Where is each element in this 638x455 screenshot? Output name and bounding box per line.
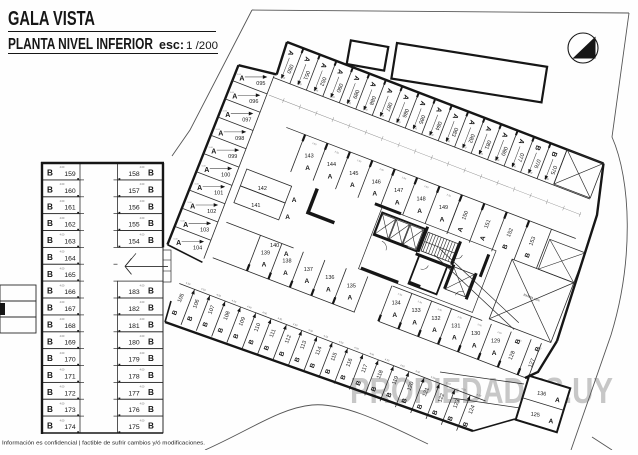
svg-text:4.00: 4.00	[60, 386, 65, 389]
svg-text:159: 159	[64, 171, 76, 178]
svg-text:4.00: 4.00	[60, 251, 65, 254]
svg-text:A: A	[183, 222, 188, 229]
svg-text:B: B	[47, 270, 53, 279]
svg-text:A: A	[350, 182, 355, 189]
svg-text:A: A	[395, 199, 400, 206]
svg-text:156: 156	[128, 205, 140, 212]
svg-text:1 /200: 1 /200	[186, 40, 218, 52]
svg-text:B: B	[47, 321, 53, 330]
svg-text:154: 154	[128, 238, 140, 245]
svg-text:146: 146	[372, 179, 381, 185]
svg-text:4.00: 4.00	[140, 419, 145, 422]
svg-text:B: B	[47, 405, 53, 414]
svg-text:4.00: 4.00	[60, 402, 65, 405]
svg-text:A: A	[211, 149, 216, 156]
svg-text:4.00: 4.00	[140, 183, 145, 186]
svg-text:183: 183	[128, 289, 140, 296]
svg-text:129: 129	[491, 339, 500, 345]
svg-text:179: 179	[128, 357, 140, 364]
svg-text:142: 142	[258, 186, 267, 192]
svg-text:099: 099	[228, 154, 237, 160]
svg-text:167: 167	[64, 306, 76, 313]
svg-text:B: B	[47, 287, 53, 296]
svg-text:143: 143	[304, 154, 313, 160]
svg-text:A: A	[440, 216, 445, 223]
svg-text:B: B	[148, 219, 154, 228]
svg-text:4.00: 4.00	[60, 183, 65, 186]
svg-text:4.00: 4.00	[60, 301, 65, 304]
svg-text:B: B	[47, 304, 53, 313]
svg-text:174: 174	[64, 424, 76, 431]
svg-text:4.00: 4.00	[140, 217, 145, 220]
svg-text:4.00: 4.00	[140, 352, 145, 355]
svg-text:A: A	[284, 251, 289, 258]
svg-text:Información es confidencial |: Información es confidencial | factible d…	[2, 441, 205, 447]
svg-text:A: A	[372, 191, 377, 198]
svg-text:148: 148	[416, 197, 425, 203]
svg-text:4.00: 4.00	[60, 166, 65, 169]
svg-text:4.00: 4.00	[140, 386, 145, 389]
svg-text:4.00: 4.00	[140, 301, 145, 304]
svg-text:173: 173	[64, 407, 76, 414]
svg-text:171: 171	[64, 373, 76, 380]
svg-text:172: 172	[64, 390, 76, 397]
svg-text:A: A	[204, 167, 209, 174]
svg-text:A: A	[190, 204, 195, 211]
svg-text:B: B	[47, 354, 53, 363]
svg-text:A: A	[328, 173, 333, 180]
svg-text:133: 133	[411, 308, 420, 314]
svg-text:A: A	[239, 75, 244, 82]
svg-text:B: B	[47, 253, 53, 262]
svg-text:A: A	[262, 262, 267, 269]
svg-text:GALA VISTA: GALA VISTA	[8, 7, 95, 30]
svg-text:140: 140	[270, 243, 279, 249]
svg-text:102: 102	[207, 209, 216, 215]
svg-text:103: 103	[200, 227, 209, 233]
svg-text:B: B	[47, 186, 53, 195]
svg-text:B: B	[148, 337, 154, 346]
svg-text:180: 180	[128, 340, 140, 347]
svg-text:B: B	[47, 422, 53, 431]
svg-text:A: A	[452, 335, 457, 342]
svg-text:145: 145	[349, 171, 358, 177]
svg-text:A: A	[197, 185, 202, 192]
svg-text:131: 131	[451, 323, 460, 329]
svg-text:4.00: 4.00	[60, 284, 65, 287]
svg-text:4.00: 4.00	[60, 369, 65, 372]
svg-text:136: 136	[537, 391, 547, 398]
svg-text:4.00: 4.00	[140, 318, 145, 321]
svg-text:A: A	[417, 208, 422, 215]
svg-text:166: 166	[64, 289, 76, 296]
svg-text:B: B	[148, 202, 154, 211]
svg-text:A: A	[326, 286, 331, 293]
svg-text:B: B	[148, 422, 154, 431]
svg-text:B: B	[148, 321, 154, 330]
svg-text:PLANTA NIVEL INFERIOR: PLANTA NIVEL INFERIOR	[8, 36, 153, 53]
svg-text:4.00: 4.00	[60, 200, 65, 203]
svg-text:A: A	[285, 214, 290, 221]
svg-text:A: A	[412, 319, 417, 326]
svg-text:A: A	[176, 240, 181, 247]
svg-text:4.00: 4.00	[60, 335, 65, 338]
svg-text:B: B	[148, 186, 154, 195]
svg-text:4.00: 4.00	[60, 352, 65, 355]
svg-text:098: 098	[235, 136, 244, 142]
svg-text:4.00: 4.00	[140, 200, 145, 203]
svg-text:4.00: 4.00	[140, 284, 145, 287]
svg-text:137: 137	[304, 267, 313, 273]
svg-text:158: 158	[128, 171, 140, 178]
svg-text:4.00: 4.00	[140, 369, 145, 372]
svg-text:182: 182	[128, 306, 140, 313]
svg-text:144: 144	[327, 162, 336, 168]
svg-text:4.00: 4.00	[60, 217, 65, 220]
svg-text:164: 164	[64, 255, 76, 262]
svg-text:A: A	[472, 342, 477, 349]
svg-text:A: A	[347, 295, 352, 302]
svg-text:162: 162	[64, 222, 76, 229]
svg-text:4.00: 4.00	[60, 267, 65, 270]
svg-text:170: 170	[64, 357, 76, 364]
svg-text:A: A	[492, 350, 497, 357]
svg-text:B: B	[148, 371, 154, 380]
svg-text:B: B	[148, 287, 154, 296]
svg-text:136: 136	[325, 275, 334, 281]
svg-text:B: B	[148, 388, 154, 397]
svg-text:160: 160	[64, 188, 76, 195]
svg-text:135: 135	[347, 283, 356, 289]
svg-text:A: A	[432, 327, 437, 334]
svg-text:175: 175	[128, 424, 140, 431]
svg-text:B: B	[148, 236, 154, 245]
svg-text:161: 161	[64, 205, 76, 212]
svg-text:165: 165	[64, 272, 76, 279]
svg-text:095: 095	[256, 81, 265, 87]
svg-text:B: B	[148, 354, 154, 363]
svg-text:176: 176	[128, 407, 140, 414]
svg-text:163: 163	[64, 238, 76, 245]
svg-text:B: B	[47, 371, 53, 380]
svg-text:177: 177	[128, 390, 140, 397]
svg-text:4.00: 4.00	[60, 318, 65, 321]
svg-text:B: B	[148, 405, 154, 414]
svg-text:104: 104	[193, 246, 202, 252]
svg-text:097: 097	[242, 118, 251, 124]
svg-text:169: 169	[64, 340, 76, 347]
svg-text:B: B	[47, 219, 53, 228]
svg-text:esc:: esc:	[159, 38, 184, 52]
svg-text:138: 138	[282, 259, 291, 265]
svg-text:130: 130	[471, 331, 480, 337]
svg-text:A: A	[225, 112, 230, 119]
svg-text:181: 181	[128, 323, 140, 330]
svg-text:B: B	[47, 388, 53, 397]
svg-text:A: A	[232, 94, 237, 101]
svg-text:139: 139	[261, 250, 270, 256]
svg-text:B: B	[148, 304, 154, 313]
svg-text:B: B	[47, 236, 53, 245]
svg-text:132: 132	[431, 316, 440, 322]
svg-text:168: 168	[64, 323, 76, 330]
svg-text:096: 096	[249, 99, 258, 105]
svg-text:178: 178	[128, 373, 140, 380]
svg-text:A: A	[283, 270, 288, 277]
svg-text:149: 149	[439, 205, 448, 211]
svg-text:155: 155	[128, 222, 140, 229]
svg-text:4.00: 4.00	[140, 234, 145, 237]
svg-text:A: A	[218, 130, 223, 137]
svg-text:B: B	[148, 169, 154, 178]
svg-text:134: 134	[392, 301, 401, 307]
svg-text:4.00: 4.00	[140, 335, 145, 338]
svg-text:A: A	[305, 165, 310, 172]
svg-text:4.00: 4.00	[140, 402, 145, 405]
svg-text:147: 147	[394, 188, 403, 194]
svg-text:157: 157	[128, 188, 140, 195]
svg-text:141: 141	[251, 203, 260, 209]
svg-text:B: B	[47, 169, 53, 178]
svg-text:4.00: 4.00	[60, 234, 65, 237]
svg-text:A: A	[305, 278, 310, 285]
svg-text:B: B	[47, 337, 53, 346]
svg-text:A: A	[292, 197, 297, 204]
svg-text:4.00: 4.00	[60, 419, 65, 422]
svg-text:A: A	[392, 312, 397, 319]
svg-text:100: 100	[221, 172, 230, 178]
svg-text:4.00: 4.00	[140, 166, 145, 169]
svg-text:125: 125	[530, 412, 540, 419]
svg-text:B: B	[47, 202, 53, 211]
svg-text:101: 101	[214, 191, 223, 197]
